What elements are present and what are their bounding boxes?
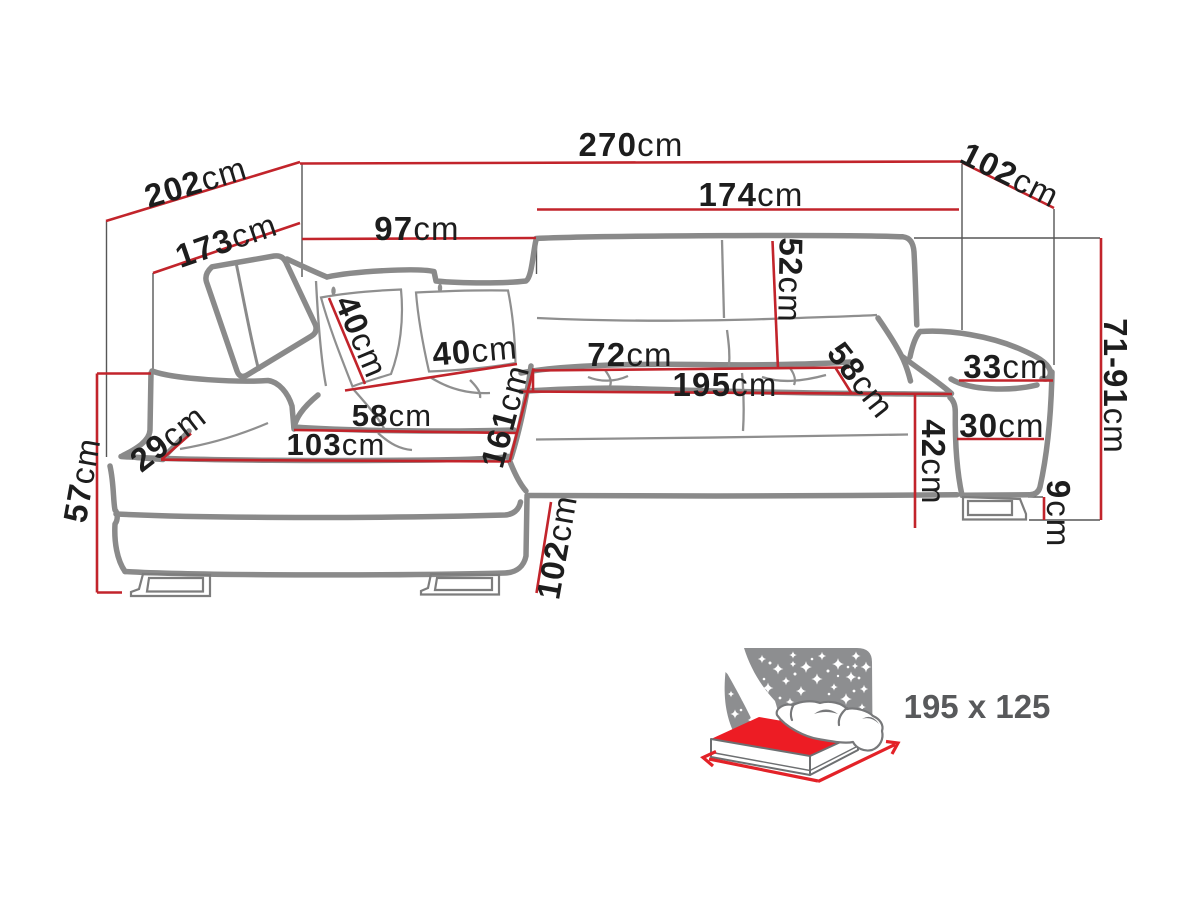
svg-text:195cm: 195cm — [672, 366, 777, 403]
svg-text:97cm: 97cm — [374, 210, 460, 247]
svg-text:195 x 125: 195 x 125 — [904, 688, 1051, 725]
svg-text:57cm: 57cm — [56, 435, 107, 526]
svg-text:161cm: 161cm — [473, 360, 536, 471]
svg-text:30cm: 30cm — [959, 407, 1045, 444]
svg-text:72cm: 72cm — [587, 336, 673, 373]
svg-text:42cm: 42cm — [915, 419, 952, 505]
svg-text:33cm: 33cm — [963, 348, 1049, 385]
svg-text:29cm: 29cm — [123, 397, 213, 479]
svg-text:71-91cm: 71-91cm — [1097, 318, 1134, 453]
svg-text:9cm: 9cm — [1040, 480, 1077, 548]
svg-text:103cm: 103cm — [286, 427, 385, 462]
svg-text:202cm: 202cm — [140, 149, 251, 215]
svg-text:102cm: 102cm — [955, 135, 1066, 215]
svg-text:58cm: 58cm — [820, 335, 902, 425]
svg-text:102cm: 102cm — [529, 492, 584, 602]
svg-text:52cm: 52cm — [771, 237, 809, 323]
svg-text:174cm: 174cm — [698, 176, 803, 213]
svg-text:270cm: 270cm — [578, 126, 683, 163]
